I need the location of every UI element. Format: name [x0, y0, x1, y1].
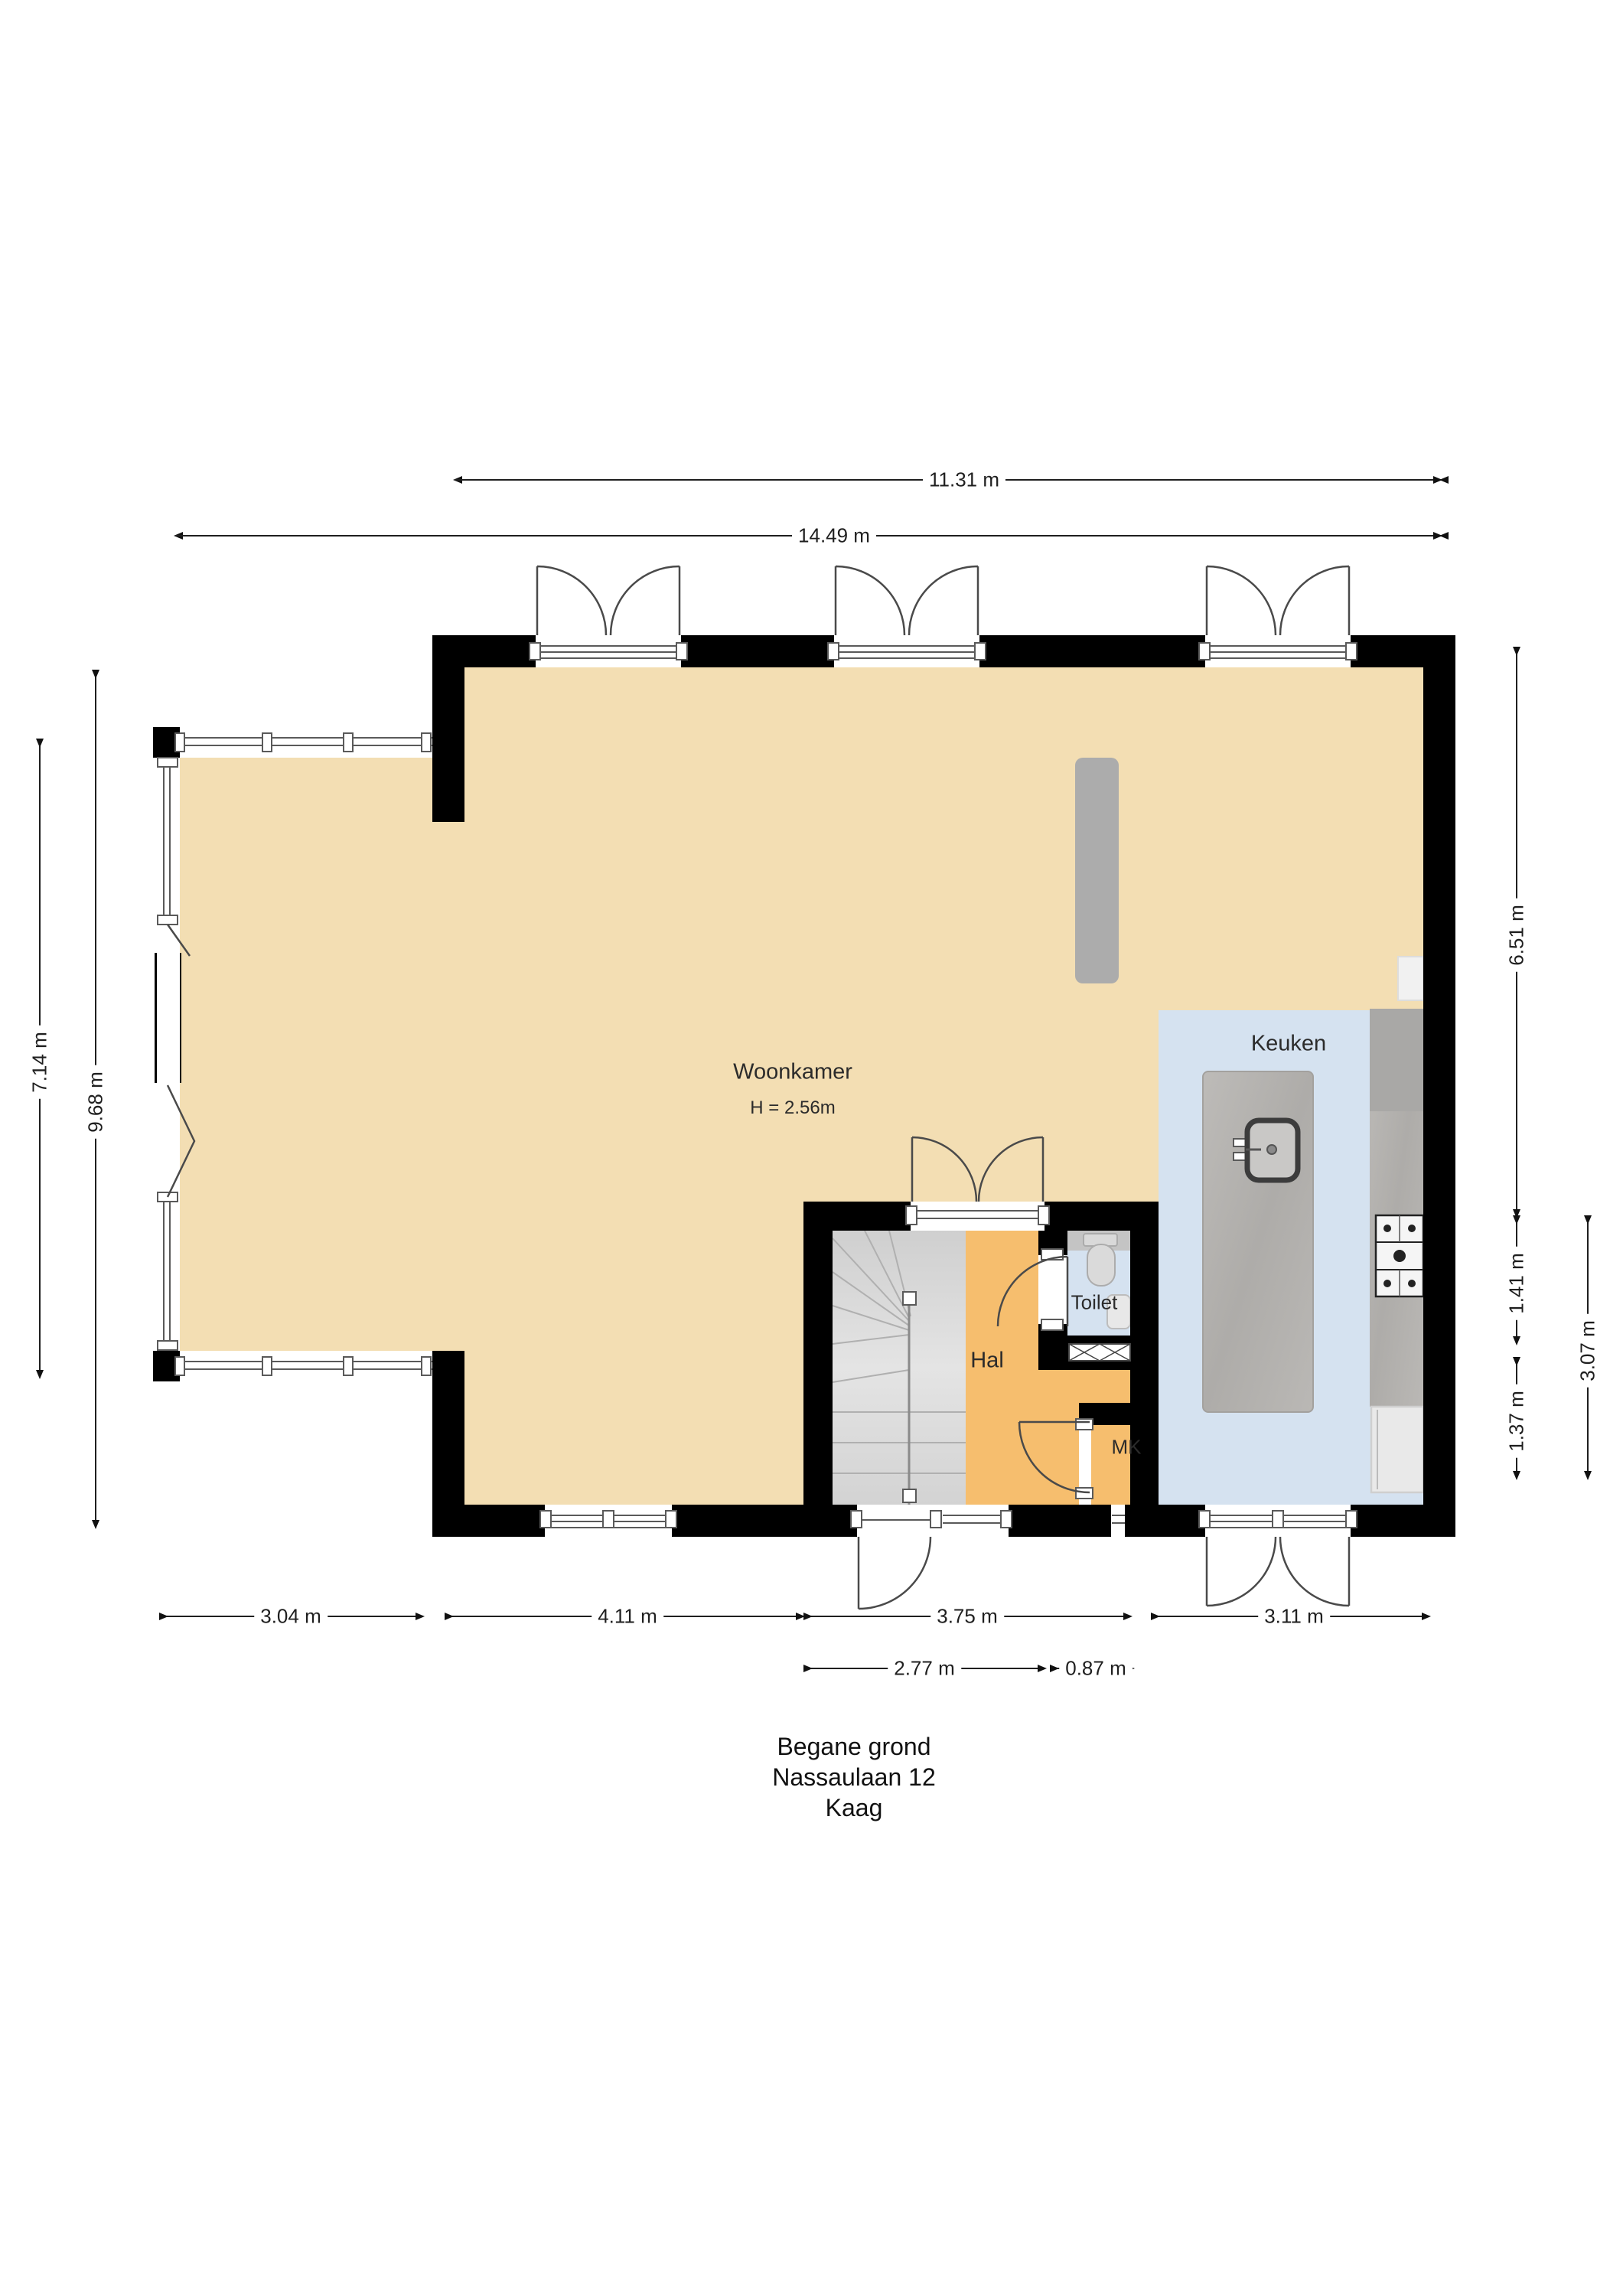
floor-bay — [180, 758, 464, 1351]
kitchen-appliance — [1371, 1407, 1423, 1492]
dim-label-bottom-sub-1: 2.77 m — [888, 1657, 961, 1681]
bay-window-top — [175, 727, 432, 758]
door-opening-top-c — [1199, 635, 1357, 667]
wall-top — [681, 635, 834, 667]
toilet-bowl — [1087, 1244, 1115, 1286]
duct-shaft — [1069, 1344, 1130, 1361]
window-small-bottom — [1111, 1505, 1125, 1537]
wall-hal-north — [803, 1202, 911, 1231]
dim-label-bottom-4: 3.11 m — [1258, 1605, 1330, 1629]
wall-bottom — [1351, 1505, 1455, 1537]
dim-label-left-inner: 9.68 m — [84, 1065, 108, 1139]
stove — [1376, 1215, 1423, 1296]
title-line-floor: Begane grond — [772, 1731, 935, 1762]
wall-bottom — [1009, 1505, 1111, 1537]
dim-label-bottom-1: 3.04 m — [254, 1605, 328, 1629]
wall-top — [979, 635, 1205, 667]
door-swing — [1207, 1537, 1276, 1606]
wall-top — [432, 635, 536, 667]
room-label-toilet: Toilet — [1071, 1291, 1118, 1315]
door-swing — [611, 566, 680, 635]
dim-label-bottom-2: 4.11 m — [592, 1605, 663, 1629]
dim-label-top-inner: 11.31 m — [923, 468, 1005, 492]
floorplan-drawing — [0, 0, 1623, 2296]
front-door-opening — [851, 1505, 1012, 1537]
wall-left-lower — [432, 1351, 464, 1505]
dim-label-right-mid: 1.41 m — [1505, 1247, 1529, 1320]
dim-label-left-outer: 7.14 m — [28, 1026, 52, 1099]
window-bottom-living — [540, 1505, 676, 1537]
door-opening-top-a — [530, 635, 687, 667]
bay-window-bottom — [175, 1351, 432, 1381]
dim-label-bottom-3: 3.75 m — [930, 1605, 1004, 1629]
title-line-city: Kaag — [772, 1792, 935, 1823]
burner — [1383, 1280, 1391, 1287]
title-line-address: Nassaulaan 12 — [772, 1762, 935, 1792]
dim-label-right-low: 1.37 m — [1505, 1384, 1529, 1458]
wall-hal-west — [803, 1202, 833, 1505]
door-swing — [537, 566, 606, 635]
burner — [1393, 1250, 1406, 1262]
room-label-hal: Hal — [970, 1349, 1004, 1374]
wall-bottom — [1125, 1505, 1205, 1537]
chimney — [1075, 758, 1119, 983]
room-label-keuken: Keuken — [1251, 1032, 1326, 1057]
dim-label-right-top: 6.51 m — [1505, 899, 1529, 972]
sink-drain — [1267, 1145, 1276, 1154]
title-block: Begane grond Nassaulaan 12 Kaag — [772, 1731, 935, 1823]
railing-post — [903, 1489, 916, 1502]
room-label-woonkamer: Woonkamer — [733, 1060, 852, 1085]
sink-tap-handle — [1234, 1139, 1246, 1146]
room-label-mk: MK — [1112, 1436, 1142, 1459]
room-note-woonkamer-height: H = 2.56m — [750, 1097, 835, 1119]
dim-label-top-outer: 14.49 m — [792, 524, 876, 548]
burner — [1408, 1280, 1416, 1287]
front-door-swing — [859, 1537, 930, 1609]
wall-bottom — [672, 1505, 857, 1537]
door-swing — [1280, 566, 1349, 635]
railing-post — [903, 1292, 916, 1305]
wall-bottom — [432, 1505, 545, 1537]
dim-label-bottom-sub-2: 0.87 m — [1059, 1657, 1133, 1681]
door-swing — [1280, 1537, 1349, 1606]
bay-window-left — [157, 758, 180, 1351]
floorplan-page: 11.31 m 14.49 m 7.14 m 9.68 m 6.51 m 1.4… — [0, 0, 1623, 2296]
kitchen-counter-top-section — [1370, 1009, 1423, 1111]
burner — [1408, 1225, 1416, 1232]
burner — [1383, 1225, 1391, 1232]
sink-tap-handle — [1234, 1153, 1246, 1160]
door-opening-hal-north — [906, 1202, 1049, 1231]
door-swing — [836, 566, 904, 635]
door-opening-kitchen — [1199, 1505, 1357, 1537]
wall-left-upper — [432, 667, 464, 822]
dim-label-right-outer: 3.07 m — [1576, 1314, 1600, 1388]
door-swing — [1207, 566, 1276, 635]
wall-right — [1423, 635, 1455, 1537]
door-swing — [909, 566, 978, 635]
wall-niche — [1398, 957, 1423, 1000]
door-opening-top-b — [828, 635, 986, 667]
